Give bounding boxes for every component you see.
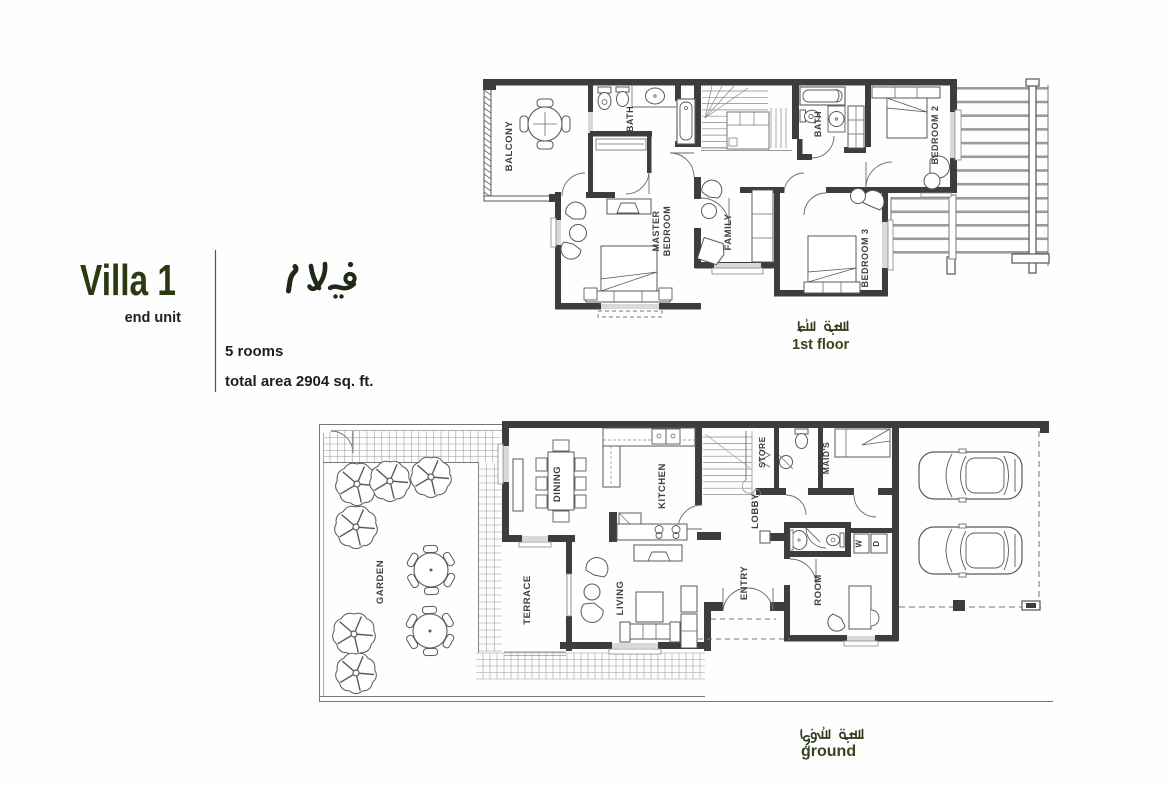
svg-text:LIVING: LIVING [615,581,626,616]
svg-text:DINING: DINING [552,466,563,502]
svg-text:TERRACE: TERRACE [522,575,533,624]
svg-text:KITCHEN: KITCHEN [657,463,668,509]
svg-text:GARDEN: GARDEN [375,560,386,604]
svg-text:BEDROOM 2: BEDROOM 2 [930,105,940,164]
svg-text:BALCONY: BALCONY [504,121,515,172]
svg-text:BEDROOM 3: BEDROOM 3 [860,228,870,287]
svg-text:total area 2904 sq. ft.: total area 2904 sq. ft. [225,373,373,390]
svg-text:MASTER: MASTER [651,211,661,252]
svg-text:BATH: BATH [625,106,635,132]
svg-text:FAMILY: FAMILY [723,213,734,250]
svg-text:BEDROOM: BEDROOM [662,206,672,257]
svg-text:BATH: BATH [813,111,823,137]
svg-text:1st floor: 1st floor [792,337,850,353]
svg-text:ground: ground [801,743,856,760]
svg-text:ROOM: ROOM [813,574,824,606]
svg-text:LOBBY: LOBBY [750,493,761,529]
svg-text:5 rooms: 5 rooms [225,343,283,360]
svg-text:D: D [872,540,881,546]
svg-text:Villa 1: Villa 1 [80,257,176,305]
svg-text:W: W [855,539,864,547]
svg-text:ENTRY: ENTRY [739,566,750,601]
svg-text:STORE: STORE [757,436,767,468]
svg-text:end unit: end unit [125,310,182,326]
svg-text:MAID'S: MAID'S [821,442,831,474]
